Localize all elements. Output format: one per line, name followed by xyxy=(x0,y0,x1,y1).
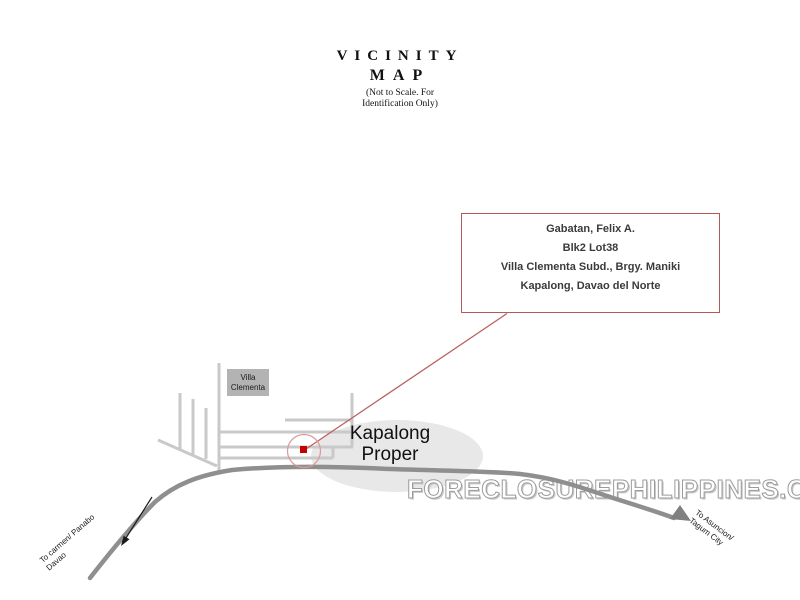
street-diagonal xyxy=(158,440,217,466)
info-subdivision: Villa Clementa Subd., Brgy. Maniki xyxy=(462,258,719,277)
villa-clementa-line2: Clementa xyxy=(227,383,269,393)
map-title-block: VICINITY MAP (Not to Scale. For Identifi… xyxy=(0,48,800,110)
page-title-line2: MAP xyxy=(0,67,800,85)
kapalong-proper-line1: Kapalong xyxy=(320,423,460,444)
highway-road xyxy=(90,467,674,578)
title-note-line1: (Not to Scale. For xyxy=(0,88,800,99)
villa-clementa-line1: Villa xyxy=(227,373,269,383)
kapalong-proper-line2: Proper xyxy=(320,444,460,465)
property-marker-dot xyxy=(300,446,307,453)
kapalong-proper-label: Kapalong Proper xyxy=(320,423,460,465)
info-municipality: Kapalong, Davao del Norte xyxy=(462,277,719,296)
vicinity-map-page: FORECLOSUREPHILIPPINES.COM VICINIT xyxy=(0,0,800,600)
road-arrowhead-right xyxy=(670,505,691,521)
villa-clementa-label: Villa Clementa xyxy=(227,369,269,396)
info-owner: Gabatan, Felix A. xyxy=(462,220,719,239)
title-note-line2: Identification Only) xyxy=(0,99,800,110)
page-title: VICINITY xyxy=(0,48,800,65)
property-info-box: Gabatan, Felix A. Blk2 Lot38 Villa Cleme… xyxy=(461,213,720,313)
info-lot: Blk2 Lot38 xyxy=(462,239,719,258)
direction-arrow-line xyxy=(126,497,152,538)
